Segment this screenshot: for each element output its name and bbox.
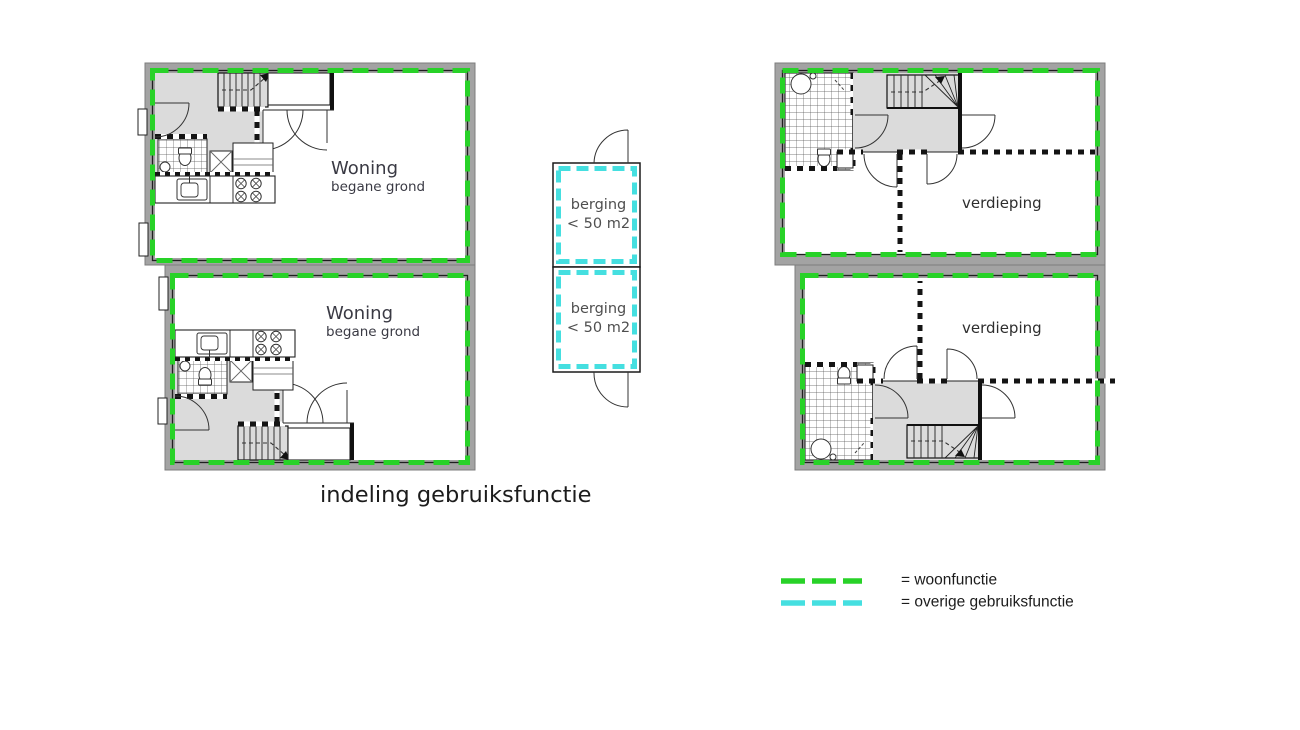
- legend: = woonfunctie = overige gebruiksfunctie: [781, 572, 1074, 611]
- berging-2: berging < 50 m2: [553, 267, 640, 407]
- berging-label: berging: [571, 197, 626, 213]
- berging-label: berging: [571, 301, 626, 317]
- plan-woning-ground-2: Woning begane grond: [158, 265, 475, 470]
- plan-sublabel: begane grond: [331, 179, 425, 195]
- berging-units: berging < 50 m2 berging < 50 m2: [553, 130, 640, 407]
- berging-door: [594, 372, 628, 407]
- berging-size: < 50 m2: [567, 320, 630, 336]
- plan-label: verdieping: [962, 319, 1042, 337]
- plan-verdieping-1: verdieping: [775, 63, 1105, 265]
- page-title: indeling gebruiksfunctie: [320, 482, 591, 508]
- plan-verdieping-2: verdieping: [795, 265, 1115, 470]
- berging-door: [594, 130, 628, 163]
- legend-overige-label: = overige gebruiksfunctie: [901, 594, 1074, 611]
- berging-size: < 50 m2: [567, 216, 630, 232]
- plan-label: Woning: [326, 303, 393, 324]
- floorplan-drawing: Woning begane grond Woning begane grond …: [0, 0, 1300, 730]
- plan-sublabel: begane grond: [326, 324, 420, 340]
- plan-woning-ground-1: Woning begane grond: [138, 63, 475, 265]
- berging-1: berging < 50 m2: [553, 130, 640, 267]
- plan-label: Woning: [331, 158, 398, 179]
- legend-woonfunctie-label: = woonfunctie: [901, 572, 997, 589]
- floorplan-page: Woning begane grond Woning begane grond …: [0, 0, 1300, 730]
- plan-label: verdieping: [962, 194, 1042, 212]
